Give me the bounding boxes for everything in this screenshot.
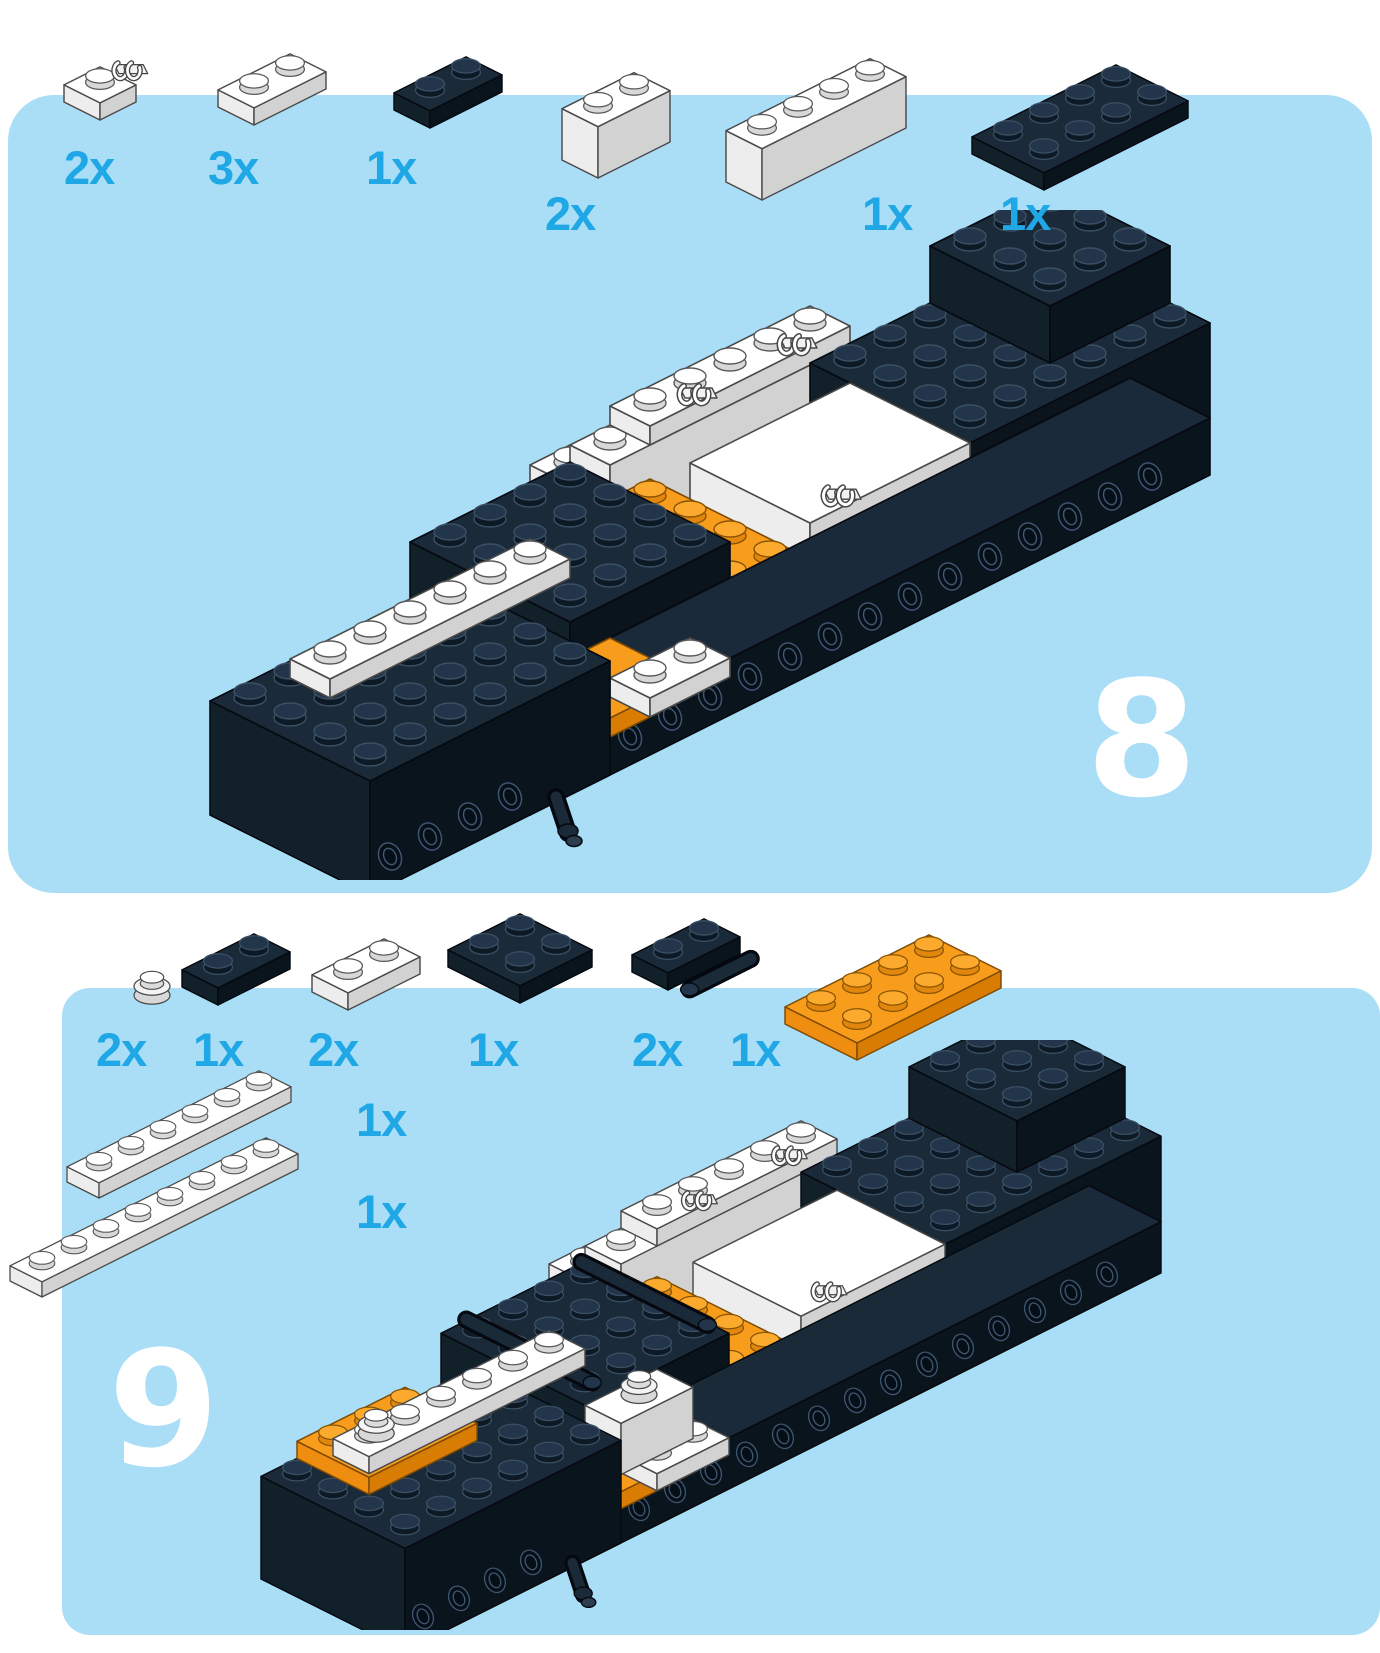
part-count-label: 2x — [308, 1026, 358, 1073]
part-count-label: 1x — [356, 1096, 406, 1143]
part-black-plate-2x4 — [952, 40, 1207, 210]
part-count-label: 1x — [366, 144, 416, 191]
part-white-plate-1x1-with-clip — [30, 42, 180, 147]
part-orange-plate-2x4 — [762, 928, 1017, 1073]
part-black-plate-2x2 — [425, 895, 620, 1020]
part-count-label: 1x — [1000, 190, 1050, 237]
part-black-plate-1x2-with-handle — [598, 905, 783, 1030]
part-white-brick-1x2 — [540, 50, 715, 195]
part-count-label: 2x — [96, 1026, 146, 1073]
part-count-label: 1x — [356, 1188, 406, 1235]
part-count-label: 2x — [64, 144, 114, 191]
part-count-label: 3x — [208, 144, 258, 191]
step8-number: 8 — [1086, 660, 1197, 820]
part-count-label: 1x — [468, 1026, 518, 1073]
part-count-label: 1x — [730, 1026, 780, 1073]
part-white-plate-1x2 — [196, 45, 366, 150]
part-count-label: 2x — [545, 190, 595, 237]
part-count-label: 1x — [862, 190, 912, 237]
part-black-plate-1x2 — [372, 48, 542, 153]
part-count-label: 1x — [193, 1026, 243, 1073]
part-count-label: 2x — [632, 1026, 682, 1073]
step9-number: 9 — [108, 1330, 219, 1490]
part-white-plate-1x8 — [0, 1112, 320, 1312]
